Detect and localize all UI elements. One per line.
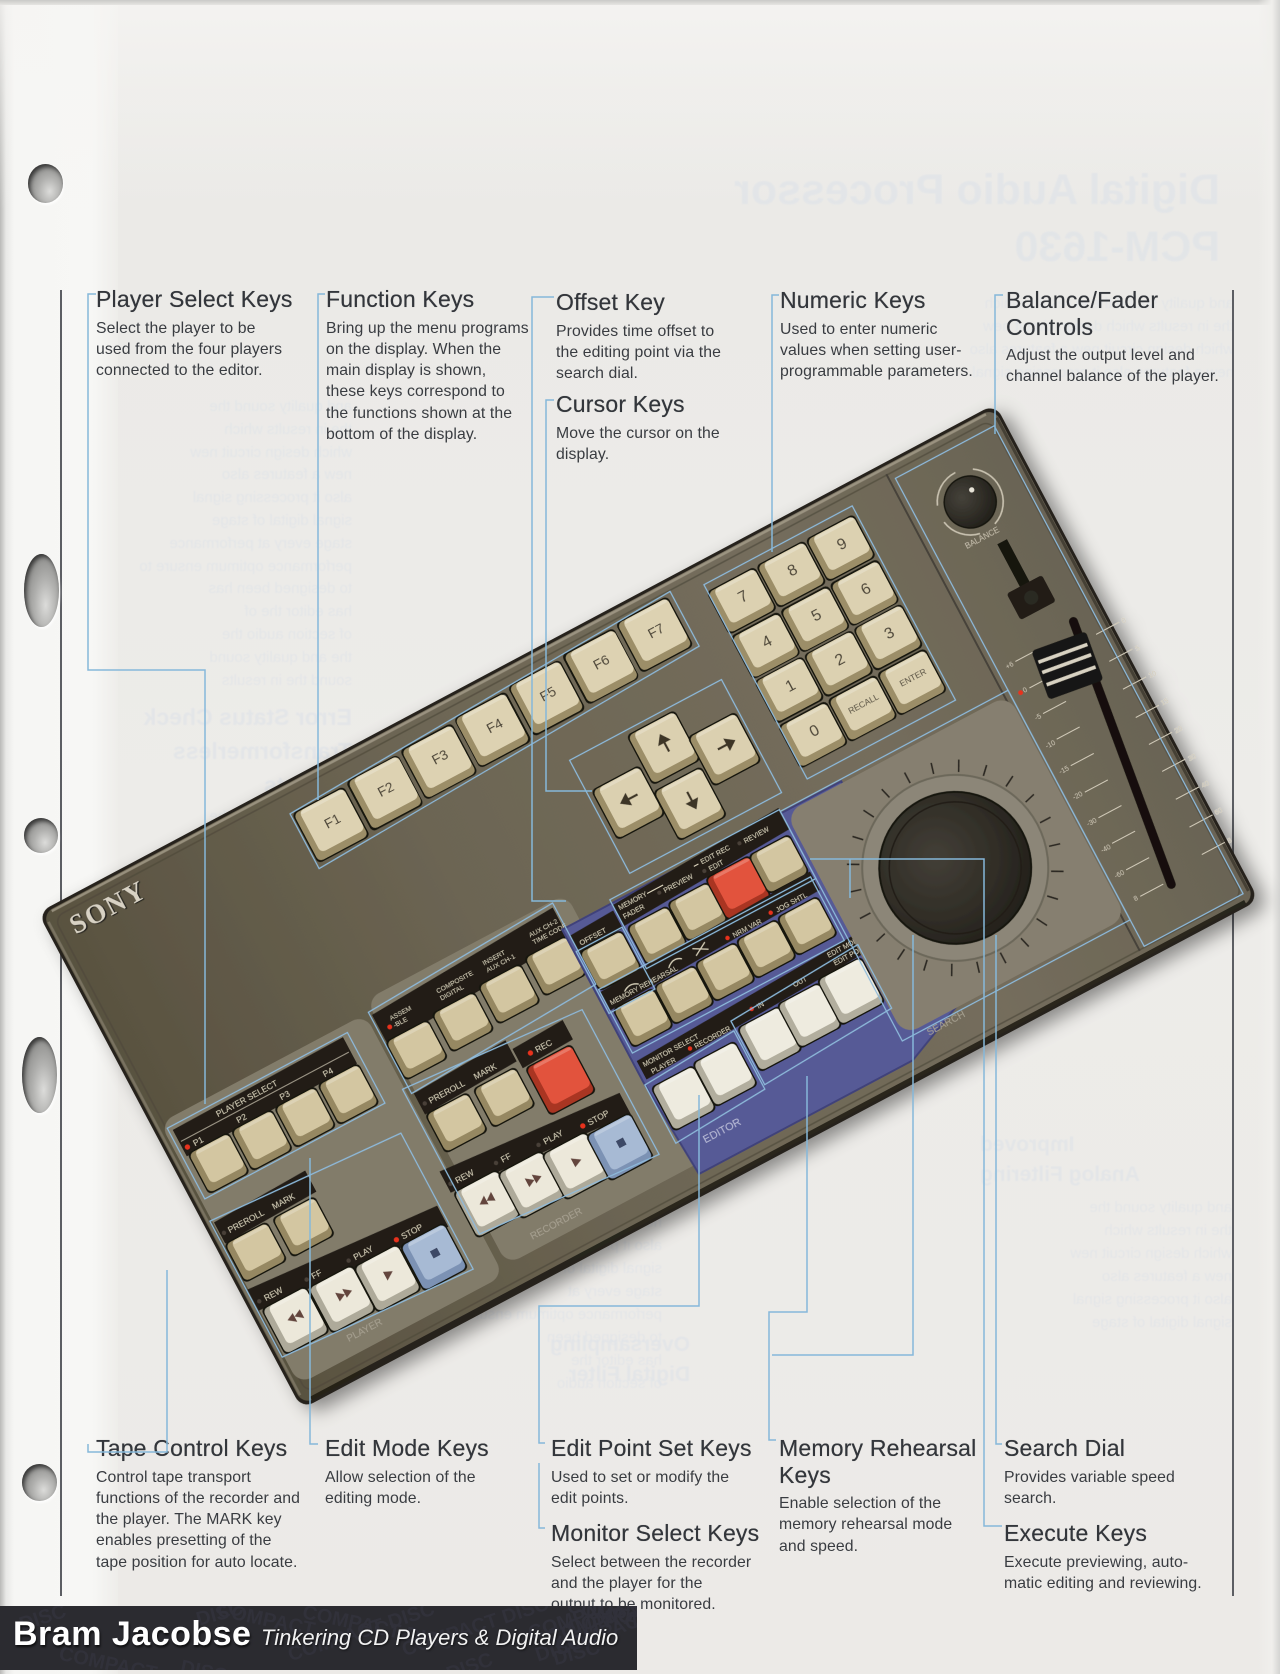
svg-text:60: 60: [1214, 807, 1224, 817]
svg-text:40: 40: [1201, 780, 1211, 790]
svg-text:20: 20: [1174, 725, 1184, 735]
svg-text:30: 30: [1187, 753, 1197, 763]
svg-text:0: 0: [1121, 617, 1128, 625]
svg-text:15: 15: [1160, 698, 1170, 708]
svg-text:5: 5: [1134, 645, 1141, 653]
svg-text:10: 10: [1148, 670, 1158, 680]
